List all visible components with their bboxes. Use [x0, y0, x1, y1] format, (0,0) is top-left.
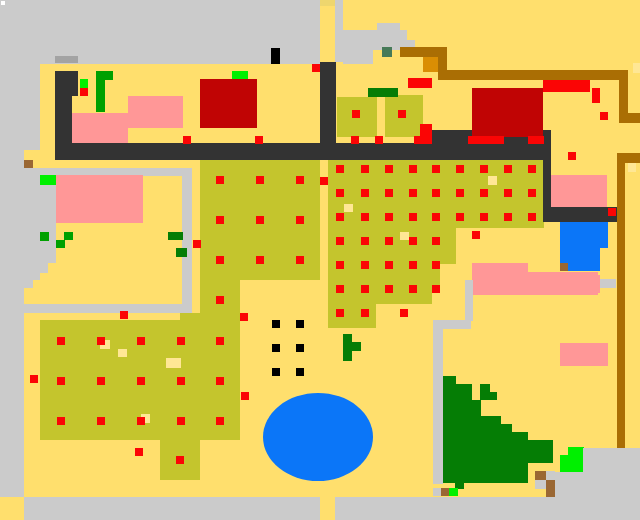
game-world-map[interactable]: [0, 0, 640, 520]
game-map-viewport: [0, 0, 640, 520]
